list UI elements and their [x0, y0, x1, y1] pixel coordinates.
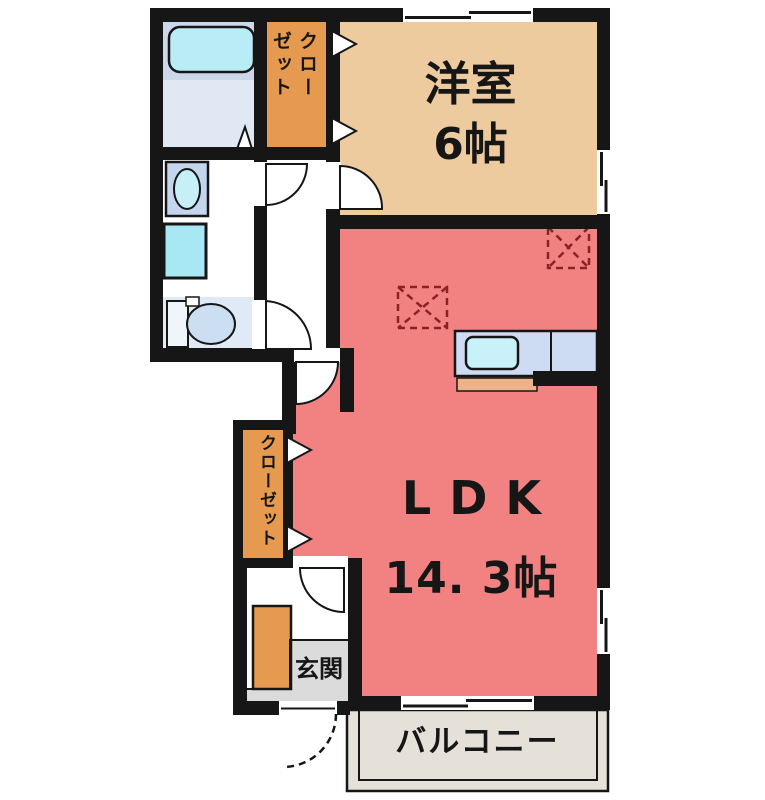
- wall-ldk-door-stub: [340, 348, 354, 412]
- ldk-door-opening: [294, 348, 340, 362]
- balcony-outer-rail: [347, 710, 608, 791]
- washbasin-icon: [174, 169, 200, 209]
- wall-hall-ldk-divider: [348, 558, 362, 710]
- balcony-area: [347, 710, 608, 791]
- toilet-button: [186, 297, 199, 306]
- upper-closet-floor: [267, 22, 326, 147]
- wall-closet-left: [233, 420, 243, 568]
- entrance-door-swing-icon: [283, 714, 336, 767]
- wall-bath-bottom: [150, 147, 340, 160]
- genkan-floor-step: [247, 689, 290, 701]
- wall-entrance-west: [233, 558, 247, 715]
- toilet-tank: [167, 301, 188, 347]
- shoe-cabinet-icon: [253, 606, 291, 689]
- wall-kitchen-stub: [533, 371, 597, 386]
- ldk-side-window-icon: [597, 588, 610, 654]
- washing-machine-icon: [164, 224, 206, 278]
- toilet-bowl: [187, 304, 235, 344]
- kitchen-sink-icon: [466, 337, 518, 369]
- wall-toilet-bottom: [150, 348, 296, 362]
- genkan-floor: [290, 640, 348, 701]
- floor-plan-drawing: [0, 0, 765, 800]
- wall-left-upper: [150, 8, 163, 362]
- western-room-door-opening: [325, 162, 341, 209]
- western-room-side-window-icon: [597, 150, 610, 214]
- kitchen-counter-edge: [457, 378, 537, 391]
- floor-plan: 洋室 6帖 LDK 14. 3帖 バルコニー 玄関 クロー ゼット クローゼット: [0, 0, 765, 800]
- wall-top: [150, 8, 610, 22]
- lower-closet-floor: [243, 430, 283, 558]
- wall-western-ldk-divider: [326, 215, 597, 229]
- balcony-sliding-door-icon: [401, 696, 534, 710]
- western-room-top-window-icon: [403, 8, 533, 22]
- western-room-floor: [340, 22, 597, 215]
- bathtub-icon: [169, 27, 254, 72]
